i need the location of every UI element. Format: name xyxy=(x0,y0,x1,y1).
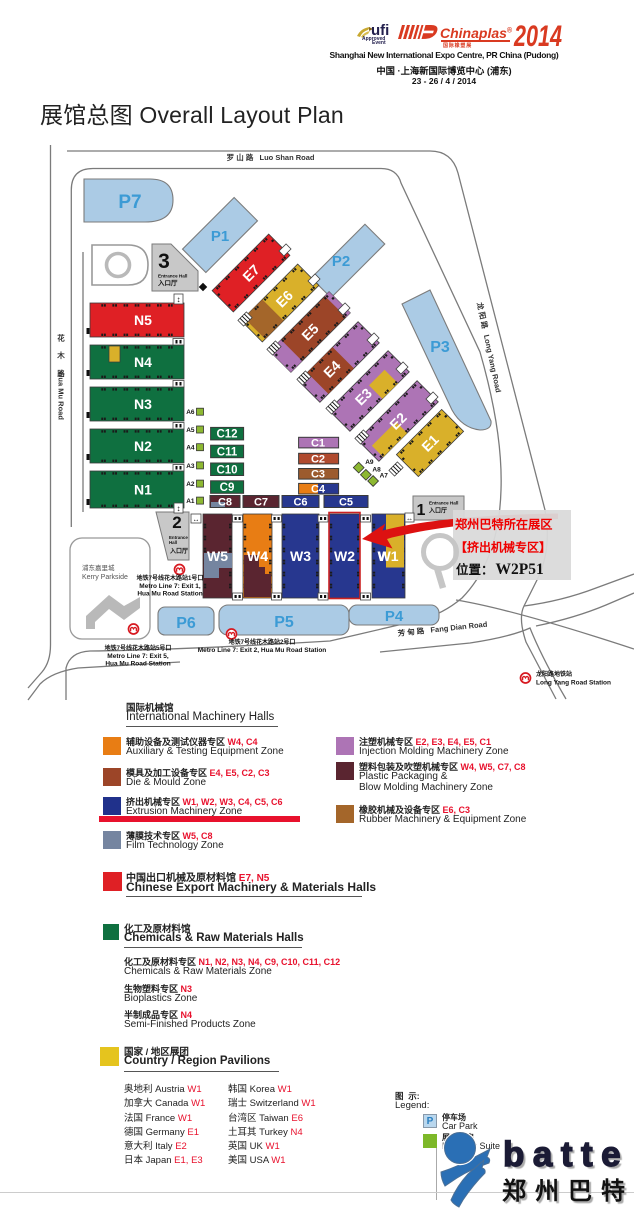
svg-text:↕: ↕ xyxy=(177,504,181,513)
svg-text:C10: C10 xyxy=(216,464,237,476)
svg-text:C1: C1 xyxy=(311,437,325,449)
svg-text:1: 1 xyxy=(417,502,426,519)
svg-text:A2: A2 xyxy=(186,481,195,488)
svg-text:↔: ↔ xyxy=(406,516,413,523)
svg-text:C4: C4 xyxy=(311,483,326,495)
svg-text:A7: A7 xyxy=(380,473,389,480)
svg-text:地铁7号线花木路站5号口: 地铁7号线花木路站5号口 xyxy=(105,644,172,652)
svg-text:【挤出机械专区】: 【挤出机械专区】 xyxy=(455,540,551,555)
svg-text:C9: C9 xyxy=(220,482,235,494)
svg-text:P1: P1 xyxy=(211,228,229,245)
svg-text:Luo Shan Road: Luo Shan Road xyxy=(260,153,315,162)
svg-text:N3: N3 xyxy=(134,396,152,412)
svg-text:Entrance Hall: Entrance Hall xyxy=(429,501,458,506)
svg-text:C6: C6 xyxy=(293,497,307,509)
svg-text:浦东嘉里城: 浦东嘉里城 xyxy=(82,563,115,572)
svg-text:入口厅: 入口厅 xyxy=(157,279,178,287)
svg-text:N2: N2 xyxy=(134,438,152,454)
svg-text:N5: N5 xyxy=(134,312,152,328)
svg-text:A6: A6 xyxy=(186,409,195,416)
svg-text:入口厅: 入口厅 xyxy=(169,547,188,555)
svg-text:↕: ↕ xyxy=(177,295,181,304)
svg-text:A9: A9 xyxy=(365,459,374,466)
svg-text:P7: P7 xyxy=(118,192,141,213)
svg-text:C3: C3 xyxy=(311,469,325,481)
svg-text:位置：W2P51: 位置：W2P51 xyxy=(456,561,544,578)
svg-text:P6: P6 xyxy=(176,615,196,632)
svg-text:2: 2 xyxy=(172,513,181,532)
svg-text:↔: ↔ xyxy=(193,517,200,524)
svg-text:Hall: Hall xyxy=(169,540,177,545)
svg-text:P3: P3 xyxy=(430,339,450,356)
svg-text:Hua Mu Road Station: Hua Mu Road Station xyxy=(137,591,202,598)
svg-text:C12: C12 xyxy=(216,429,237,441)
svg-text:C11: C11 xyxy=(217,447,238,459)
svg-text:A1: A1 xyxy=(186,498,195,505)
svg-text:Metro Line 7: Exit 5,: Metro Line 7: Exit 5, xyxy=(107,653,169,660)
svg-text:C5: C5 xyxy=(339,497,353,509)
svg-text:龙阳路地铁站: 龙阳路地铁站 xyxy=(536,670,572,678)
svg-text:C2: C2 xyxy=(311,453,325,465)
svg-text:A4: A4 xyxy=(186,445,195,452)
svg-text:龙 阳 路 Long Yang Road: 龙 阳 路 Long Yang Road xyxy=(475,301,504,393)
svg-text:C8: C8 xyxy=(218,497,232,509)
svg-text:W5: W5 xyxy=(207,548,228,564)
svg-text:C7: C7 xyxy=(254,497,268,509)
svg-text:W4: W4 xyxy=(247,548,268,564)
svg-text:N1: N1 xyxy=(134,482,152,498)
svg-text:地铁7号线花木路站1号口: 地铁7号线花木路站1号口 xyxy=(137,574,204,582)
svg-text:罗 山 路: 罗 山 路 xyxy=(227,152,254,162)
svg-text:3: 3 xyxy=(158,250,170,273)
svg-text:Metro Line 7: Exit 1,: Metro Line 7: Exit 1, xyxy=(139,583,201,590)
svg-text:Kerry Parkside: Kerry Parkside xyxy=(82,574,128,581)
svg-text:W2: W2 xyxy=(334,548,355,564)
svg-text:P2: P2 xyxy=(332,253,350,270)
svg-text:地铁7号线花木路站2号口: 地铁7号线花木路站2号口 xyxy=(229,638,296,646)
svg-text:W3: W3 xyxy=(290,548,311,564)
svg-text:P5: P5 xyxy=(274,614,294,631)
svg-text:郑州巴特所在展区: 郑州巴特所在展区 xyxy=(455,517,553,532)
svg-text:入口厅: 入口厅 xyxy=(428,507,447,515)
svg-text:W1: W1 xyxy=(378,548,399,564)
svg-text:N4: N4 xyxy=(134,354,152,370)
svg-text:Hua Mu Road: Hua Mu Road xyxy=(57,372,66,420)
svg-text:Entrance Hall: Entrance Hall xyxy=(158,274,187,279)
svg-text:A5: A5 xyxy=(186,427,195,434)
svg-text:Metro Line 7: Exit 2, Hua Mu R: Metro Line 7: Exit 2, Hua Mu Road Statio… xyxy=(198,647,327,654)
svg-text:Long Yang Road Station: Long Yang Road Station xyxy=(536,680,611,687)
svg-text:A3: A3 xyxy=(186,463,195,470)
svg-text:P4: P4 xyxy=(385,608,404,625)
svg-text:Hua Mu Road Station: Hua Mu Road Station xyxy=(105,661,170,668)
